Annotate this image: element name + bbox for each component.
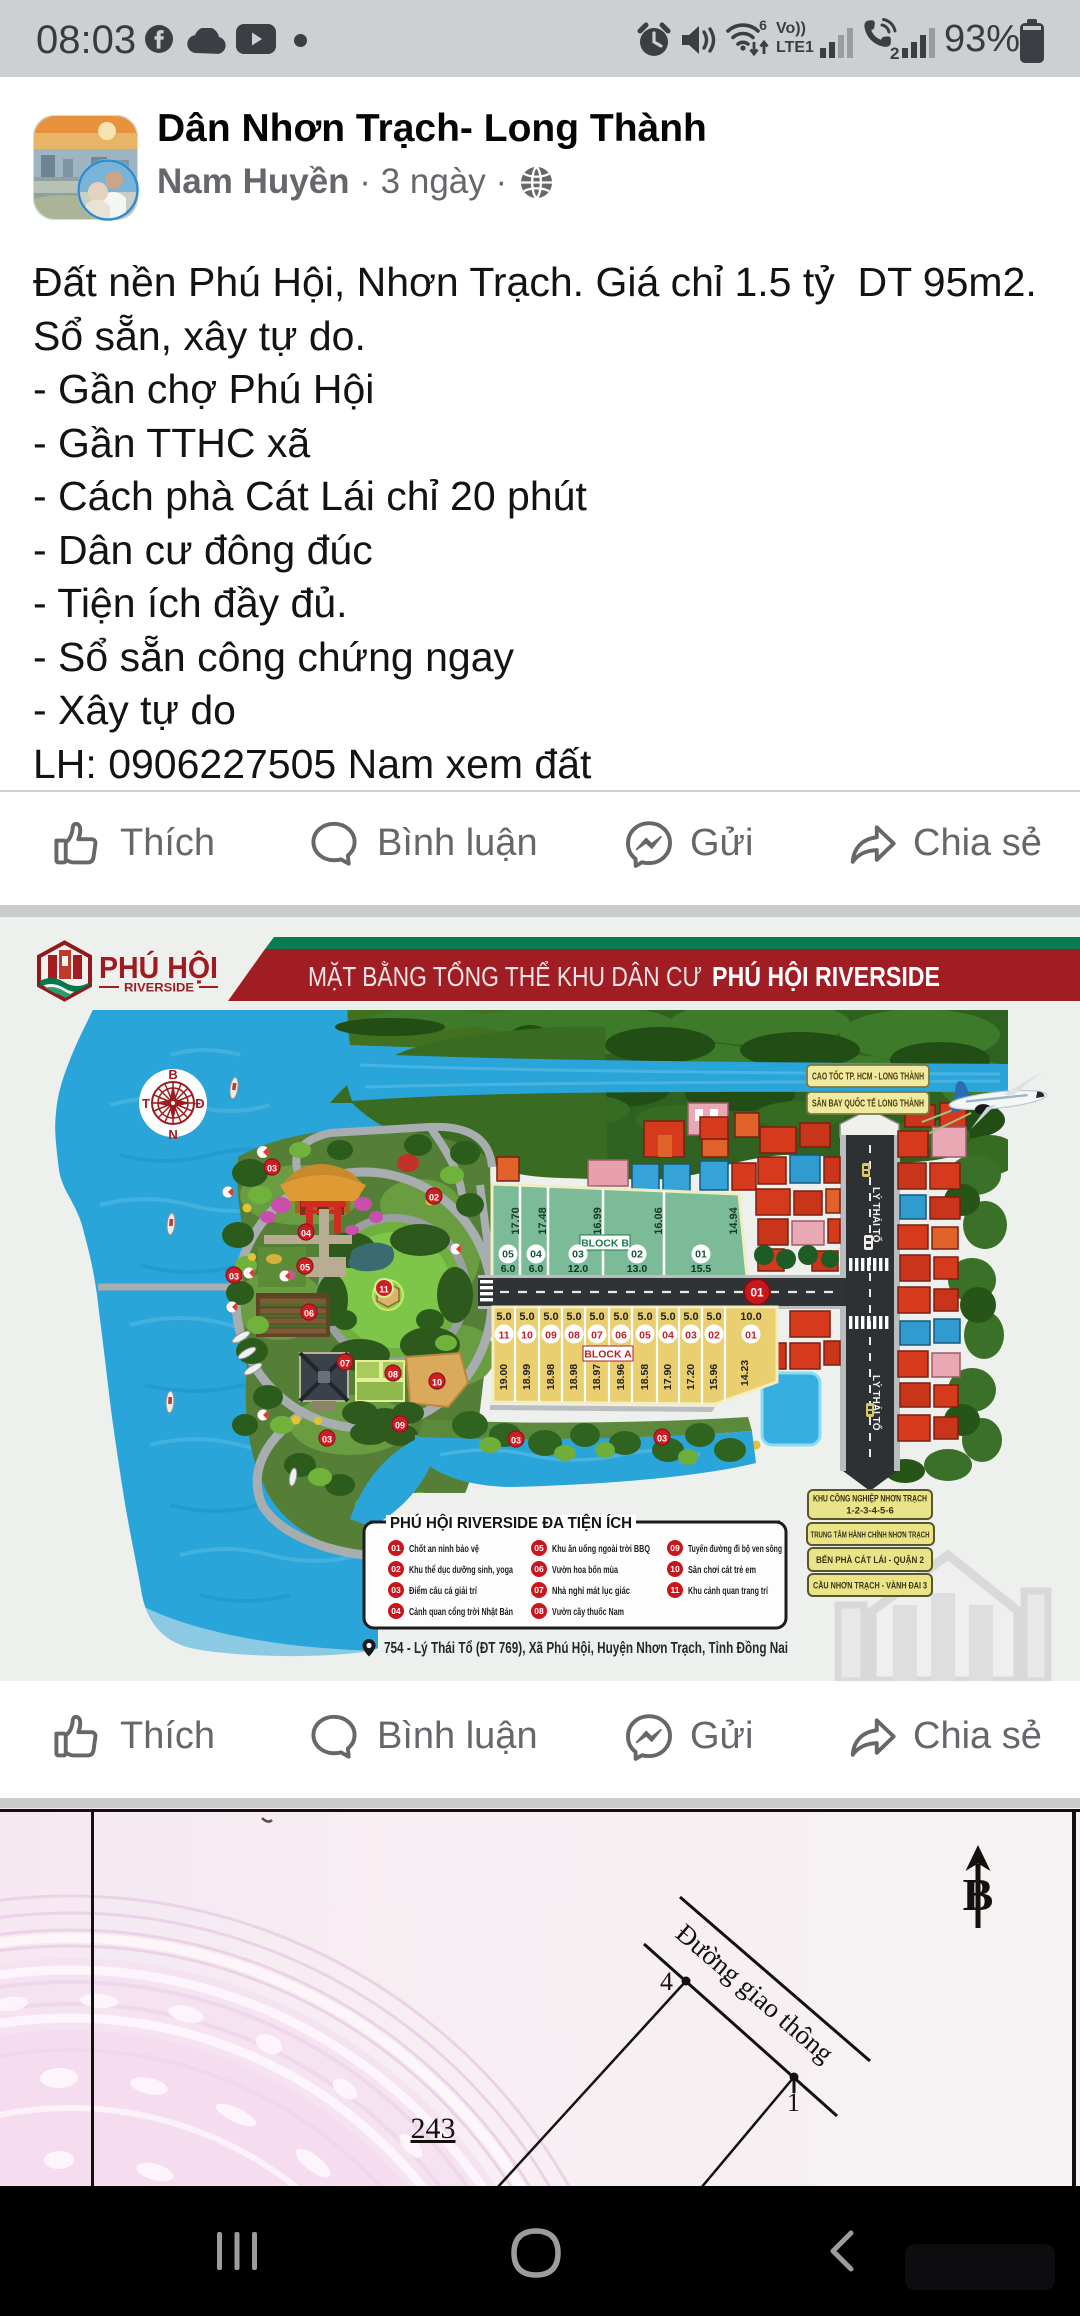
svg-text:5.0: 5.0: [683, 1311, 698, 1323]
svg-text:09: 09: [670, 1543, 680, 1553]
svg-text:1: 1: [787, 2088, 800, 2117]
svg-text:Sân chơi cát trẻ em: Sân chơi cát trẻ em: [688, 1565, 756, 1576]
svg-text:5.0: 5.0: [519, 1311, 534, 1323]
svg-text:01: 01: [750, 1286, 764, 1300]
svg-text:5.0: 5.0: [589, 1311, 604, 1323]
svg-text:02: 02: [631, 1249, 643, 1261]
svg-text:17.20: 17.20: [685, 1364, 697, 1390]
svg-text:B: B: [963, 1869, 994, 1920]
svg-text:18.97: 18.97: [591, 1364, 603, 1390]
svg-text:5.0: 5.0: [660, 1311, 675, 1323]
svg-text:09: 09: [395, 1421, 405, 1431]
svg-text:08: 08: [388, 1370, 398, 1380]
svg-text:T: T: [142, 1096, 150, 1111]
svg-text:Điểm câu cá giải trí: Điểm câu cá giải trí: [409, 1585, 478, 1597]
svg-text:BLOCK B: BLOCK B: [581, 1238, 629, 1250]
svg-text:15.5: 15.5: [691, 1263, 712, 1275]
svg-text:02: 02: [429, 1193, 439, 1203]
svg-text:03: 03: [322, 1435, 332, 1445]
svg-text:04: 04: [662, 1330, 674, 1342]
svg-text:17.48: 17.48: [537, 1207, 549, 1235]
svg-text:10: 10: [432, 1378, 442, 1388]
svg-text:B: B: [168, 1067, 177, 1082]
svg-text:Nhà nghỉ mát lục giác: Nhà nghỉ mát lục giác: [552, 1586, 630, 1597]
svg-text:10: 10: [670, 1564, 680, 1574]
svg-text:13.0: 13.0: [627, 1263, 648, 1275]
svg-text:18.96: 18.96: [615, 1364, 627, 1390]
svg-text:243: 243: [411, 2112, 456, 2145]
svg-text:Đ: Đ: [195, 1096, 204, 1111]
svg-text:18.98: 18.98: [545, 1364, 557, 1390]
svg-text:4: 4: [660, 1967, 673, 1996]
svg-text:05: 05: [639, 1330, 651, 1342]
svg-text:PHÚ HỘI RIVERSIDE: PHÚ HỘI RIVERSIDE: [712, 960, 940, 992]
svg-text:N: N: [168, 1127, 177, 1142]
svg-text:11: 11: [498, 1330, 509, 1342]
svg-text:05: 05: [300, 1263, 310, 1273]
svg-text:10: 10: [521, 1330, 533, 1342]
svg-text:16.99: 16.99: [592, 1207, 604, 1235]
svg-text:Cảnh quan cổng trời Nhật Bản: Cảnh quan cổng trời Nhật Bản: [409, 1606, 513, 1618]
svg-text:Khu thể dục dưỡng sinh, yoga: Khu thể dục dưỡng sinh, yoga: [409, 1564, 513, 1576]
svg-text:MẶT BẰNG TỔNG THỂ KHU DÂN CƯ: MẶT BẰNG TỔNG THỂ KHU DÂN CƯ: [308, 961, 702, 992]
svg-text:03: 03: [657, 1434, 667, 1444]
svg-text:01: 01: [745, 1330, 757, 1342]
svg-text:06: 06: [615, 1330, 627, 1342]
svg-text:04: 04: [391, 1606, 401, 1616]
svg-text:Khu cảnh quan trang trí: Khu cảnh quan trang trí: [688, 1586, 769, 1597]
svg-text:5.0: 5.0: [637, 1311, 652, 1323]
svg-text:14.94: 14.94: [728, 1206, 740, 1234]
svg-text:04: 04: [530, 1249, 542, 1261]
svg-text:5.0: 5.0: [613, 1311, 628, 1323]
svg-text:LÝ THÁI TỔ: LÝ THÁI TỔ: [870, 1375, 883, 1431]
svg-text:Vườn cây thuốc Nam: Vườn cây thuốc Nam: [552, 1606, 624, 1618]
svg-text:PHÚ HỘI RIVERSIDE ĐA TIỆN ÍCH: PHÚ HỘI RIVERSIDE ĐA TIỆN ÍCH: [390, 1513, 632, 1532]
svg-text:08: 08: [534, 1606, 544, 1616]
svg-text:LÝ THÁI TỔ: LÝ THÁI TỔ: [870, 1187, 883, 1243]
svg-text:18.98: 18.98: [568, 1364, 580, 1390]
svg-text:6.0: 6.0: [529, 1263, 544, 1275]
svg-text:17.70: 17.70: [510, 1207, 522, 1235]
svg-text:03: 03: [511, 1436, 521, 1446]
svg-text:01: 01: [695, 1249, 707, 1261]
svg-text:17.90: 17.90: [662, 1364, 674, 1390]
svg-text:05: 05: [502, 1249, 514, 1261]
svg-text:06: 06: [534, 1564, 544, 1574]
svg-text:10.0: 10.0: [740, 1311, 761, 1323]
svg-text:08: 08: [568, 1330, 580, 1342]
svg-text:KHU CÔNG NGHIỆP NHƠN TRẠCH: KHU CÔNG NGHIỆP NHƠN TRẠCH: [813, 1493, 927, 1505]
svg-text:Khu ăn uống ngoài trời BBQ: Khu ăn uống ngoài trời BBQ: [552, 1543, 650, 1555]
svg-text:16.06: 16.06: [653, 1207, 665, 1235]
svg-text:03: 03: [391, 1585, 401, 1595]
svg-text:SÂN BAY QUỐC TẾ LONG THÀNH: SÂN BAY QUỐC TẾ LONG THÀNH: [812, 1096, 924, 1110]
svg-text:1-2-3-4-5-6: 1-2-3-4-5-6: [846, 1506, 894, 1517]
svg-text:07: 07: [534, 1585, 544, 1595]
svg-text:18.99: 18.99: [521, 1364, 533, 1390]
svg-text:18.58: 18.58: [639, 1364, 651, 1390]
svg-text:Tuyến đường đi bộ ven sông: Tuyến đường đi bộ ven sông: [688, 1543, 782, 1555]
svg-text:03: 03: [267, 1164, 277, 1174]
svg-text:BẾN PHÀ CÁT LÁI - QUẬN 2: BẾN PHÀ CÁT LÁI - QUẬN 2: [816, 1554, 924, 1566]
svg-text:03: 03: [572, 1249, 584, 1261]
svg-text:11: 11: [379, 1285, 389, 1295]
svg-text:RIVERSIDE: RIVERSIDE: [124, 981, 194, 995]
svg-text:06: 06: [304, 1309, 314, 1319]
svg-text:Vo)): Vo)): [776, 20, 806, 37]
svg-text:LTE1: LTE1: [776, 39, 814, 56]
svg-text:Vườn hoa bốn mùa: Vườn hoa bốn mùa: [552, 1564, 618, 1576]
svg-text:CẦU NHƠN TRẠCH - VÀNH ĐAI 3: CẦU NHƠN TRẠCH - VÀNH ĐAI 3: [813, 1581, 927, 1591]
svg-text:Chốt an ninh bảo vệ: Chốt an ninh bảo vệ: [409, 1543, 479, 1555]
svg-text:BLOCK A: BLOCK A: [584, 1349, 632, 1361]
svg-text:6: 6: [759, 18, 767, 33]
svg-text:02: 02: [391, 1564, 401, 1574]
svg-text:07: 07: [340, 1359, 350, 1369]
svg-text:01: 01: [391, 1543, 401, 1553]
svg-text:5.0: 5.0: [706, 1311, 721, 1323]
svg-text:5.0: 5.0: [496, 1311, 511, 1323]
svg-text:CAO TỐC TP. HCM - LONG THÀNH: CAO TỐC TP. HCM - LONG THÀNH: [812, 1069, 924, 1083]
svg-text:6.0: 6.0: [501, 1263, 516, 1275]
svg-text:5.0: 5.0: [543, 1311, 558, 1323]
svg-text:TRUNG TÂM HÀNH CHÍNH NHƠN TRẠC: TRUNG TÂM HÀNH CHÍNH NHƠN TRẠCH: [811, 1529, 930, 1540]
svg-text:12.0: 12.0: [568, 1263, 589, 1275]
svg-text:5.0: 5.0: [566, 1311, 581, 1323]
svg-text:14.23: 14.23: [739, 1360, 751, 1386]
svg-text:09: 09: [545, 1330, 557, 1342]
svg-text:02: 02: [708, 1330, 720, 1342]
svg-text:03: 03: [685, 1330, 697, 1342]
svg-text:03: 03: [229, 1272, 239, 1282]
svg-text:04: 04: [301, 1229, 311, 1239]
svg-text:11: 11: [671, 1585, 680, 1595]
svg-text:15.96: 15.96: [708, 1364, 720, 1390]
svg-text:05: 05: [534, 1543, 544, 1553]
svg-text:754 - Lý Thái Tổ (ĐT 769), Xã: 754 - Lý Thái Tổ (ĐT 769), Xã Phú Hội, H…: [384, 1640, 788, 1657]
svg-text:19.00: 19.00: [498, 1364, 510, 1390]
svg-text:07: 07: [591, 1330, 603, 1342]
svg-text:2: 2: [890, 44, 899, 62]
